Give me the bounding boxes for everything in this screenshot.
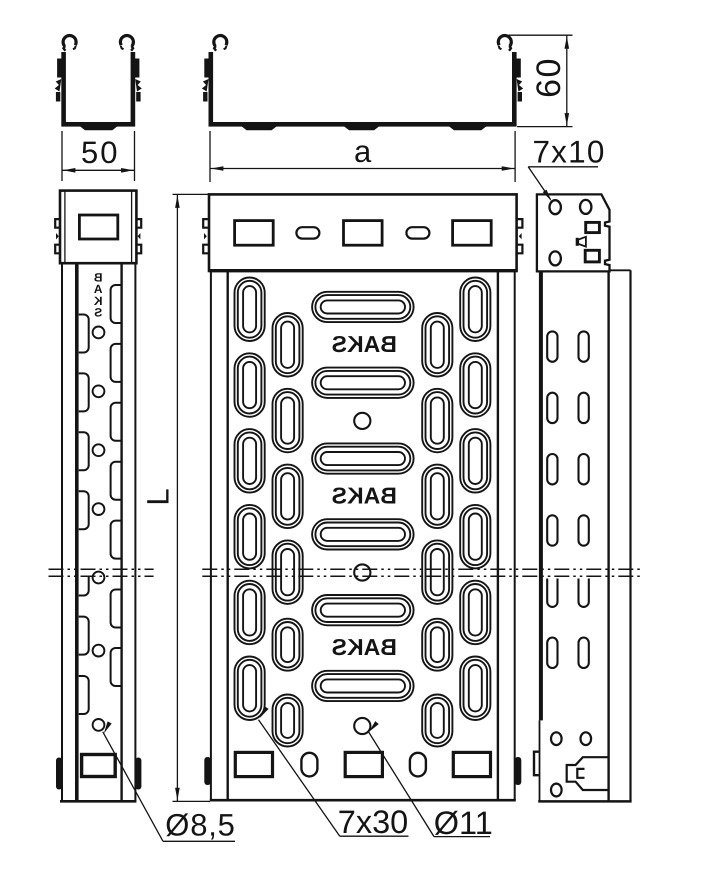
svg-text:L: L (141, 488, 176, 505)
svg-text:S: S (94, 306, 102, 320)
svg-text:60: 60 (530, 57, 568, 98)
svg-text:50: 50 (81, 135, 119, 170)
svg-text:a: a (354, 134, 372, 169)
svg-text:BAKS: BAKS (332, 483, 397, 509)
svg-text:7x30: 7x30 (338, 804, 408, 840)
svg-text:Ø11: Ø11 (434, 805, 493, 841)
svg-text:BAKS: BAKS (332, 634, 397, 660)
svg-text:7x10: 7x10 (532, 133, 605, 169)
svg-text:BAKS: BAKS (332, 331, 397, 357)
svg-text:Ø8,5: Ø8,5 (165, 808, 235, 843)
